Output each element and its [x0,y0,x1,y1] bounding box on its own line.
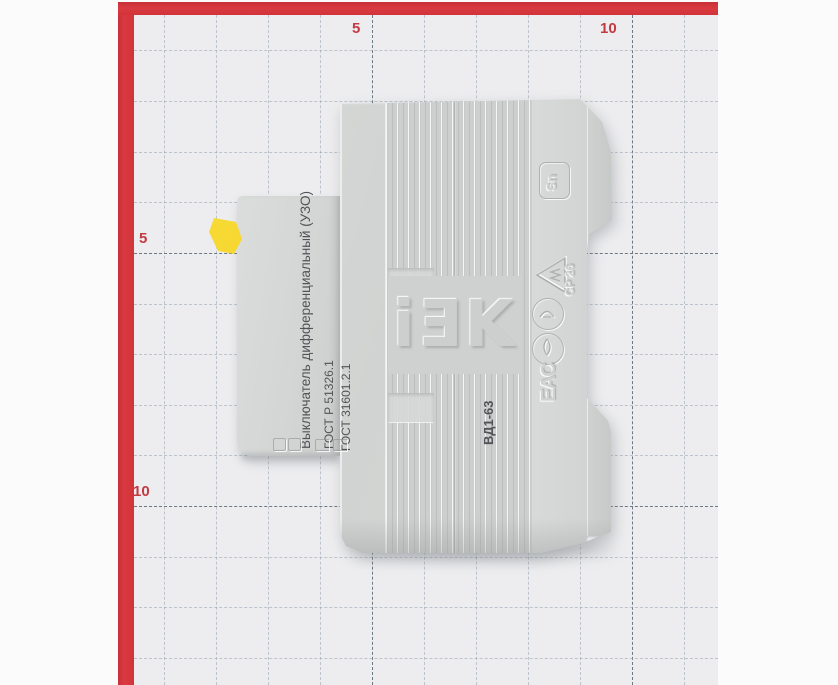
vent-slot [388,393,434,423]
photo-frame-left [118,2,134,685]
mold-mark [273,438,286,451]
grid-minor-line [134,607,718,608]
mold-mark [288,438,301,451]
grid-minor-line [134,658,718,659]
grid-minor-line [684,15,685,685]
certification-circle-mark-icon [532,333,564,365]
gost-text-1: ГОСТ Р 51326.1 [323,360,335,449]
mold-mark [315,439,329,451]
mold-mark [333,439,347,451]
grid-minor-line [164,15,165,685]
sn-mark-label: Sn [545,174,558,191]
brand-logo: iƎK [393,293,517,357]
certification-circle-mark-icon [532,298,564,330]
ruler-label-top-10: 10 [600,21,617,36]
eac-mark: ЕАС [539,363,559,402]
model-text: ВД1-63 [482,401,495,446]
photo-frame-top [118,2,718,15]
breaker-body-surface: iƎK Sn СР 26 [200,90,630,570]
circuit-breaker-device: iƎK Sn СР 26 [200,90,630,570]
din-rail-side [587,90,613,560]
type-text: Выключатель дифференциальный (УЗО) [299,191,313,449]
din-clip-notch [586,536,599,553]
body-left-edge-highlight [340,99,342,553]
cp26-label: СР 26 [566,264,578,296]
ruler-label-left-10: 10 [133,484,150,499]
grid-major-line [632,15,633,685]
ruler-label-top-5: 5 [352,21,360,36]
ruler-label-left-5: 5 [139,231,147,246]
grid-minor-line [134,50,718,51]
brand-logo-plate: iƎK [388,276,522,374]
bottom-shading [340,518,612,553]
product-photo-page: { "frame": { "color": "#d6353d" }, "rule… [0,0,838,685]
breaker-body: iƎK Sn СР 26 [200,90,630,570]
gost-text-2: ГОСТ 31601.2.1 [340,364,352,451]
